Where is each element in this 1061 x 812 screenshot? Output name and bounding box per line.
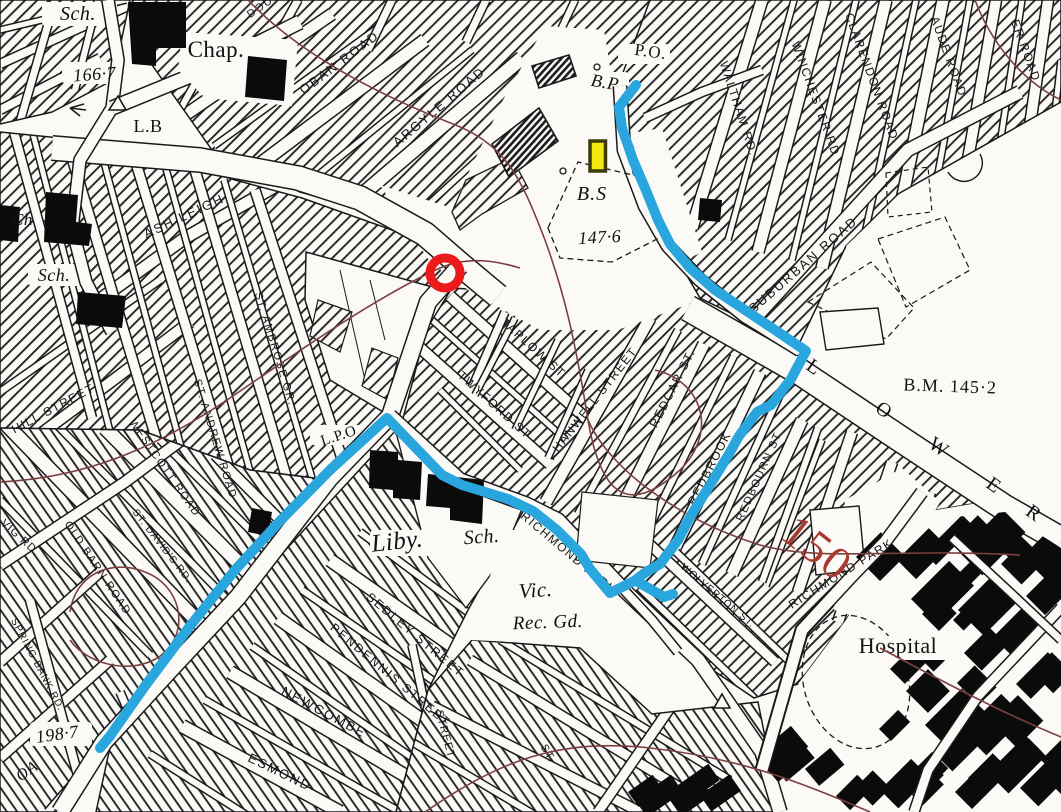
svg-text:Rec. Gd.: Rec. Gd. (511, 611, 583, 634)
svg-text:Chap.: Chap. (188, 37, 245, 62)
svg-text:Sch.: Sch. (60, 3, 96, 25)
svg-text:B.M. 145·2: B.M. 145·2 (903, 374, 997, 397)
svg-text:Hospital: Hospital (859, 633, 938, 658)
svg-text:Sch.: Sch. (463, 525, 500, 549)
svg-text:B.S: B.S (577, 183, 607, 205)
svg-text:Ch: Ch (12, 210, 33, 229)
svg-text:147·6: 147·6 (578, 226, 622, 248)
svg-text:Sch.: Sch. (38, 265, 71, 285)
svg-text:Liby.: Liby. (369, 525, 424, 557)
svg-text:Vic.: Vic. (518, 577, 553, 603)
svg-text:L.B: L.B (133, 116, 162, 136)
svg-text:166·7: 166·7 (72, 63, 117, 86)
